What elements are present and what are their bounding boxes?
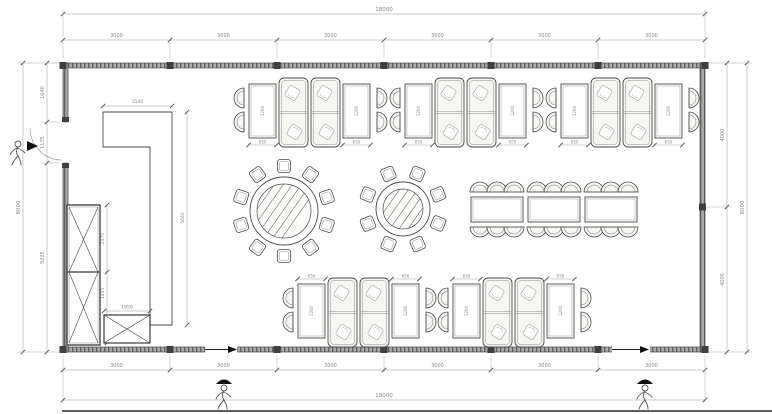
figure-body: [223, 392, 231, 397]
column: [595, 346, 602, 353]
drawing-sheet: 1800030003000300030003000300030003000300…: [0, 0, 772, 414]
chair: [359, 215, 376, 232]
chair: [377, 112, 387, 132]
column: [702, 346, 709, 353]
chair: [581, 312, 591, 332]
column: [595, 62, 602, 69]
chair-outline: [301, 166, 319, 184]
table-length-label: 1200: [666, 105, 671, 116]
figure-body: [17, 148, 25, 153]
banquet-table: [471, 197, 523, 222]
chair: [278, 160, 291, 173]
booth-sofa: [591, 78, 620, 147]
figure-body: [637, 392, 644, 399]
booth-sofa: [279, 78, 308, 147]
left-dimension-column: 1640113552258000: [16, 61, 60, 354]
chair: [581, 288, 591, 308]
table-length-label: 1200: [510, 105, 515, 116]
chair: [561, 182, 581, 192]
chair-outline: [409, 236, 426, 253]
door-jamb: [62, 117, 69, 122]
dimension-label: 3000: [538, 33, 551, 39]
booth-unit: 12001200650650: [283, 274, 436, 348]
partition-width-dim: 1500: [132, 99, 144, 105]
table-length-label: 1200: [260, 105, 265, 116]
chair: [248, 238, 266, 256]
chair: [533, 112, 543, 132]
column: [274, 346, 281, 353]
chair: [380, 165, 397, 182]
chair: [618, 182, 638, 192]
chair: [380, 236, 397, 253]
banquet-table: [528, 197, 580, 222]
dimension-label: 3000: [110, 363, 123, 369]
chair: [248, 166, 266, 184]
table-width-dim: 650: [353, 140, 361, 145]
bottom-dimension-row: 30003000300030003000300018000: [61, 356, 707, 402]
furniture-layer: 1200120065065012001200650650120012006506…: [223, 78, 699, 347]
column: [699, 204, 706, 211]
chair: [430, 215, 447, 232]
figure-body: [644, 392, 652, 397]
figure-cap: [216, 380, 232, 385]
figure-body: [216, 392, 223, 399]
chair: [504, 182, 524, 192]
chair-outline: [233, 189, 249, 205]
figure-body: [10, 148, 17, 155]
round-table-8-seats: [349, 165, 447, 252]
banquet-table: [585, 197, 637, 222]
chair: [377, 88, 387, 108]
bottom-total-dim: 18000: [375, 393, 393, 399]
left-total-dim: 8000: [16, 200, 22, 214]
dimension-label: 4000: [720, 129, 726, 142]
right-total-dim: 8000: [740, 200, 746, 214]
dimension-label: 3000: [645, 363, 658, 369]
figure-head: [642, 385, 648, 391]
column: [60, 346, 67, 353]
chair: [546, 112, 556, 132]
booth-unit: 12001200650650: [234, 78, 387, 147]
chair-outline: [319, 217, 335, 233]
figure-body: [224, 400, 227, 409]
round-table-10-seats: [223, 160, 335, 263]
top-total-dim: 18000: [375, 7, 393, 13]
chair-outline: [359, 186, 376, 203]
column: [60, 62, 67, 69]
chair: [234, 112, 244, 132]
column: [381, 62, 388, 69]
column: [167, 62, 174, 69]
chair: [504, 227, 524, 237]
chair: [359, 186, 376, 203]
figure-cap: [637, 380, 653, 385]
door-swing-arc: [30, 128, 62, 160]
figure-body: [18, 156, 21, 165]
cabinet-lower-dim: 1455: [100, 288, 106, 300]
table-length-label: 1200: [416, 105, 421, 116]
right-dimension-column: 400040008000: [707, 61, 752, 354]
chair: [438, 288, 448, 308]
dimension-label: 4000: [720, 273, 726, 286]
entry-direction-arrow: [27, 141, 38, 151]
chair: [546, 88, 556, 108]
partition-counter: [103, 112, 172, 325]
table-width-dim: 650: [571, 140, 579, 145]
booth-sofa: [623, 78, 652, 147]
dimension-label: 1135: [40, 136, 46, 149]
table-width-dim: 650: [402, 274, 410, 279]
dimension-label: 3000: [645, 33, 658, 39]
chair-outline: [233, 217, 249, 233]
table-width-dim: 650: [557, 274, 565, 279]
chair: [409, 165, 426, 182]
table-length-label: 1200: [354, 105, 359, 116]
chair-outline: [301, 238, 319, 256]
dimension-label: 3000: [324, 363, 337, 369]
booth-sofa: [515, 278, 544, 347]
partition-height-dim: 5640: [180, 212, 186, 224]
booth-unit: 12001200650650: [438, 274, 591, 348]
chair: [319, 189, 335, 205]
table-length-label: 1200: [403, 305, 408, 316]
chair-outline: [248, 238, 266, 256]
table-width-dim: 650: [509, 140, 517, 145]
chair: [283, 312, 293, 332]
chair: [283, 288, 293, 308]
chair: [234, 88, 244, 108]
table-length-label: 1200: [309, 305, 314, 316]
chair: [301, 166, 319, 184]
cabinet-upper-dim: 2470: [100, 233, 106, 245]
booth-sofa: [435, 78, 464, 147]
figure-body: [639, 400, 645, 409]
door-opening: [61, 122, 70, 163]
chair: [533, 88, 543, 108]
chair: [426, 312, 436, 332]
dimension-label: 3000: [431, 363, 444, 369]
column: [274, 62, 281, 69]
chair: [233, 217, 249, 233]
dimension-label: 3000: [217, 33, 230, 39]
chair: [409, 236, 426, 253]
booth-unit: 12001200650650: [546, 78, 699, 147]
table-width-dim: 650: [308, 274, 316, 279]
low-cabinet-width-dim: 1950: [121, 305, 133, 311]
table-width-dim: 650: [463, 274, 471, 279]
chair-outline: [248, 166, 266, 184]
dimension-label: 3000: [538, 363, 551, 369]
table-length-label: 1200: [572, 105, 577, 116]
chair: [301, 238, 319, 256]
booth-sofa: [311, 78, 340, 147]
figure-body: [218, 400, 224, 409]
dimension-label: 1640: [40, 86, 46, 99]
chair: [426, 288, 436, 308]
chair: [278, 250, 291, 263]
table-width-dim: 650: [415, 140, 423, 145]
dimension-label: 3000: [324, 33, 337, 39]
figure-head: [15, 141, 21, 147]
chair: [390, 88, 400, 108]
table-width-dim: 650: [665, 140, 673, 145]
booth-unit: 12001200650650: [390, 78, 543, 147]
top-dimension-row: 18000300030003000300030003000: [61, 7, 707, 58]
figure-head: [221, 385, 227, 391]
booth-sofa: [483, 278, 512, 347]
fixture-layer: 15005640247014551950: [67, 99, 189, 345]
figure-body: [12, 156, 18, 165]
table-width-dim: 650: [259, 140, 267, 145]
chair: [233, 189, 249, 205]
figure-body: [645, 400, 648, 409]
floor-plan-canvas: 1800030003000300030003000300030003000300…: [0, 0, 772, 414]
column: [702, 62, 709, 69]
chair: [618, 227, 638, 237]
chair: [319, 217, 335, 233]
booth-sofa: [467, 78, 496, 147]
column: [167, 346, 174, 353]
chair-outline: [409, 165, 426, 182]
chair-outline: [430, 186, 447, 203]
table-length-label: 1200: [558, 305, 563, 316]
column: [488, 62, 495, 69]
booth-sofa: [328, 278, 357, 347]
chair: [561, 227, 581, 237]
chair-outline: [430, 215, 447, 232]
chair-outline: [380, 236, 397, 253]
dimension-label: 3000: [217, 363, 230, 369]
table-length-label: 1200: [464, 305, 469, 316]
tall-cabinet: [67, 205, 100, 345]
chair: [689, 112, 699, 132]
chair: [390, 112, 400, 132]
door-jamb: [62, 163, 69, 168]
person-figure-bottom-right: [637, 380, 653, 410]
chair: [430, 186, 447, 203]
chair: [689, 88, 699, 108]
person-figure-bottom-left: [216, 380, 232, 410]
chair: [438, 312, 448, 332]
chair-outline: [380, 165, 397, 182]
dimension-label: 3000: [431, 33, 444, 39]
chair-outline: [359, 215, 376, 232]
dimension-label: 5225: [40, 251, 46, 264]
chair-outline: [319, 189, 335, 205]
booth-sofa: [360, 278, 389, 347]
banquet-table-group: [470, 182, 638, 237]
dimension-label: 3000: [110, 33, 123, 39]
